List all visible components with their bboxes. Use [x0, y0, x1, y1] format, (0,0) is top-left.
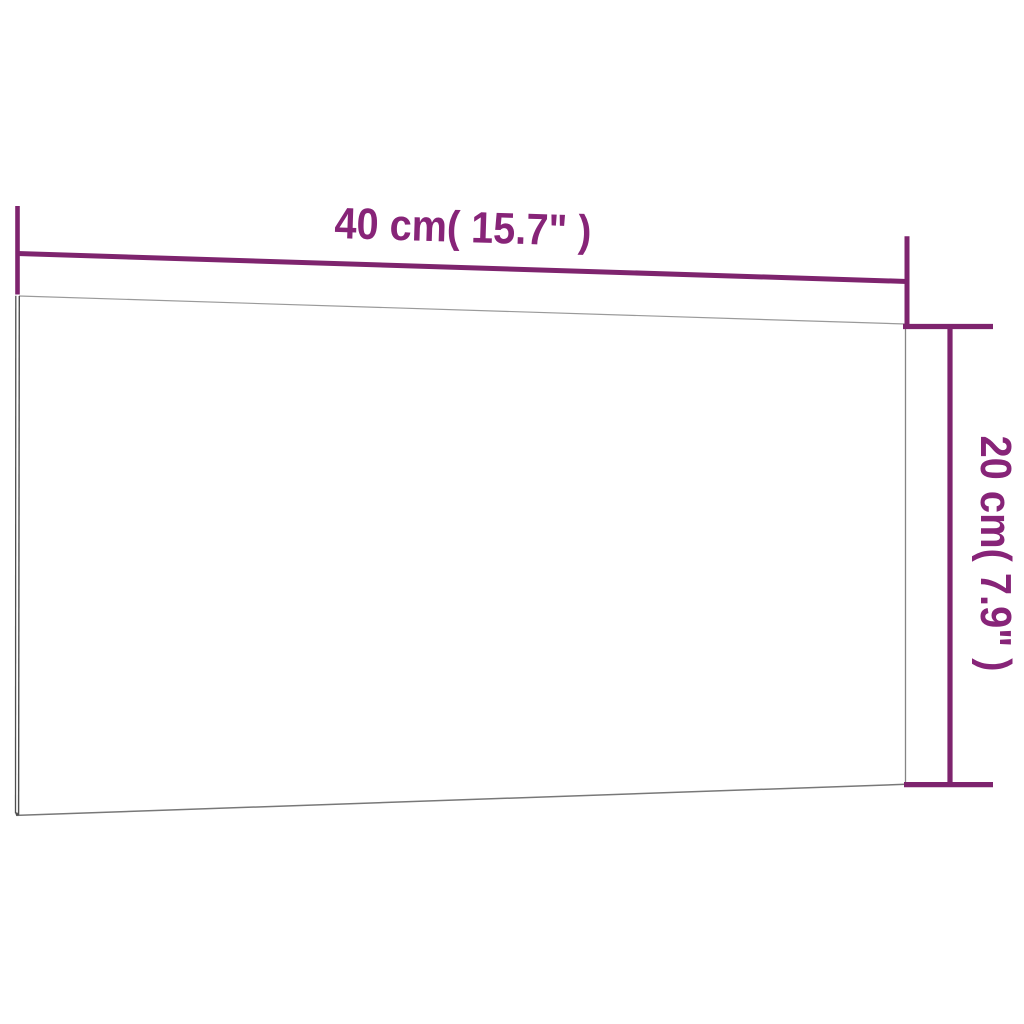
svg-text:40 cm( 15.7" ): 40 cm( 15.7" )	[334, 199, 592, 256]
svg-text:20 cm( 7.9" ): 20 cm( 7.9" )	[971, 436, 1020, 672]
